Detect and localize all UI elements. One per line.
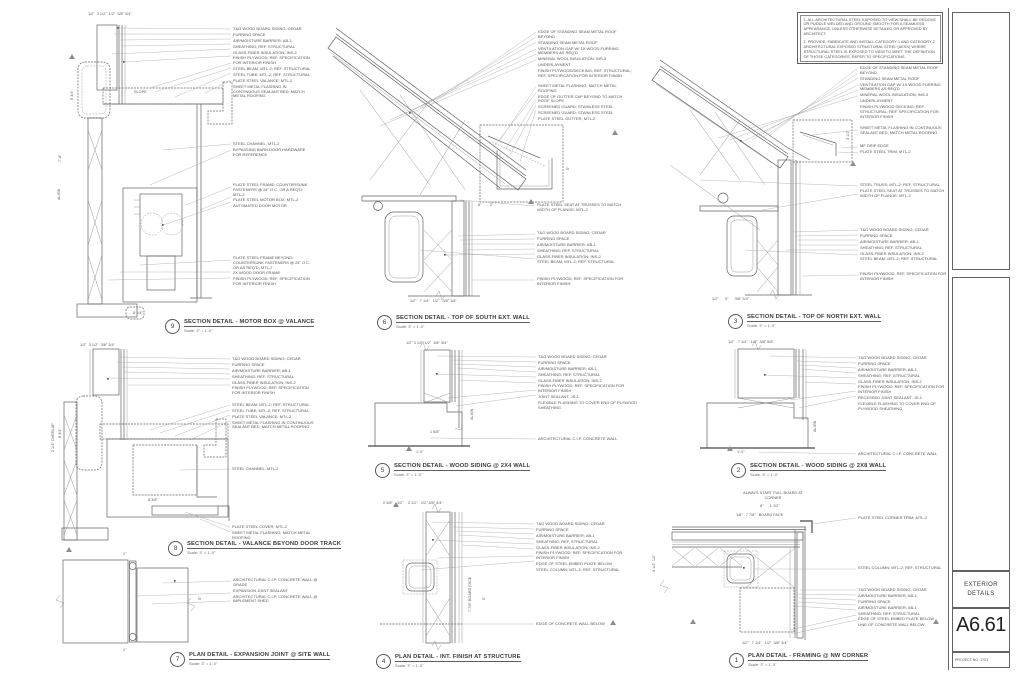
annotation-line: SHEATHING; REF. STRUCTURAL (233, 45, 313, 50)
dimension-text: 5" (482, 597, 486, 600)
annotation-line: FURRING SPACE (537, 237, 627, 242)
dimension-text: 1/2" 3 1/2" 1/2" 3/8" 3/4" (406, 341, 448, 345)
corner-board-note: ALWAYS START FULL BOARD AT CORNER (742, 491, 804, 501)
annotation-line: SHEET METAL FLASHING IN CONTINUOUS SEALA… (233, 85, 313, 99)
detail-scale: Scale: 3" = 1'-0" (395, 663, 521, 668)
detail-title: SECTION DETAIL - WOOD SIDING @ 2X4 WALL (394, 463, 530, 471)
annotation-line: BYPASSING BARN DOOR HARDWARE FOR REFEREN… (233, 148, 313, 158)
dimension-text: 1'-0" (737, 450, 745, 454)
dimension-text: 8 1/4" (133, 311, 143, 315)
detail-number-bubble: 6 (377, 315, 392, 330)
dimension-text: 8" 2" (478, 203, 493, 207)
annotation-line: ARCHITECTURAL C.I.P. CONCRETE WALL @ IMP… (233, 595, 318, 605)
revision-triangle-icon (610, 620, 616, 625)
annotation-line: VENTILATION GAP W/ 1X WOOD FURRING MEMBE… (860, 83, 952, 93)
annotation-line: FURRING SPACE (858, 362, 950, 367)
annotation-line: VENTILATION GAP W/ 1X WOOD FURRING MEMBE… (538, 47, 633, 57)
dimension-text: 5" (566, 167, 570, 170)
titleblock-rule (948, 8, 949, 670)
annotation-group: T&G WOOD BOARD SIDING; CEDARFURRING SPAC… (232, 357, 317, 397)
annotation-line: PLATE STEEL SEAT AT TRUSSES TO MATCH WID… (860, 189, 952, 199)
detail-number-bubble: 2 (731, 463, 746, 478)
annotation-line: SHEATHING; REF. STRUCTURAL (538, 373, 638, 378)
titleblock-upper-box (952, 12, 1010, 270)
detail-title: SECTION DETAIL - VALANCE BEYOND DOOR TRA… (187, 541, 341, 549)
revision-triangle-icon (690, 619, 696, 624)
annotation-line: PLATE STEEL FRAME; COUNTERSUNK FASTENERS… (233, 183, 313, 197)
dimension-text: ALIGN (57, 189, 61, 200)
annotation-group: T&G WOOD BOARD SIDING; CEDARFURRING SPAC… (536, 522, 624, 574)
annotation-group: ARCHITECTURAL C.I.P. CONCRETE WALL (538, 437, 638, 443)
annotation-line: ARCHITECTURAL C.I.P. CONCRETE WALL (858, 452, 950, 457)
annotation-line: FURRING SPACE (536, 528, 624, 533)
annotation-group: EDGE OF STANDING SEAM METAL ROOF BEYONDS… (860, 66, 952, 121)
annotation-line: AIR/MOISTURE BARRIER; AB-1 (538, 367, 638, 372)
annotation-line: AUTOMATED DOOR MOTOR (233, 204, 313, 209)
annotation-group: ARCHITECTURAL C.I.P. CONCRETE WALL @ GRA… (233, 578, 318, 605)
revision-triangle-icon (612, 130, 618, 135)
annotation-group: T&G WOOD BOARD SIDING; CEDARFURRING SPAC… (538, 355, 638, 412)
annotation-line: 1. ALL ARCHITECTURAL STEEL EXPOSED TO VI… (804, 18, 937, 38)
dimension-text: 1/2" 7 1/4" 1/2" 3/8" 3/4" (742, 641, 788, 645)
detail-title: SECTION DETAIL - MOTOR BOX @ VALANCE (184, 319, 314, 327)
annotation-line: PLATE STEEL FRAME BEYOND; COUNTERSUNK FA… (233, 256, 315, 270)
detail-title: SECTION DETAIL - TOP OF SOUTH EXT. WALL (396, 315, 530, 323)
detail-9-drawing (77, 25, 232, 319)
revision-triangle-icon (528, 199, 534, 204)
sheet-name: EXTERIOR DETAILS (952, 571, 1010, 608)
annotation-line: SHEATHING; REF. STRUCTURAL (860, 246, 952, 251)
detail-number-bubble: 3 (728, 314, 743, 329)
dimension-text: 7'-8" (58, 154, 62, 162)
annotation-group: PLATE STEEL CORNER TRIM; MTL-2 (858, 516, 948, 522)
annotation-line: SHEATHING; REF. STRUCTURAL (537, 249, 627, 254)
dimension-text: 1/8" 7 7/8" BOARD FACE (736, 513, 783, 517)
detail-number-bubble: 1 (729, 653, 744, 668)
annotation-line: SHEET METAL FLASHING; MATCH METAL ROOFIN… (538, 84, 628, 94)
annotation-line: FINISH PLYWOOD; REF. SPECIFICATION FOR I… (538, 384, 638, 394)
annotation-line: STANDING SEAM METAL ROOF (860, 77, 952, 82)
annotation-line: AIR/MOISTURE BARRIER; AB-1 (858, 594, 953, 599)
annotation-line: FURRING SPACE (858, 600, 953, 605)
annotation-line: FINISH PLYWOOD; REF. SPECIFICATION FOR I… (536, 551, 624, 561)
detail-2-drawing (700, 341, 815, 448)
dimension-text: 8" 1 1/2" (760, 504, 780, 508)
annotation-line: STEEL COLUMN; MTL-2; REF. STRUCTURAL (858, 566, 948, 571)
annotation-line: STEEL BEAM; MTL-2; REF. STRUCTURAL (537, 260, 627, 265)
annotation-line: 2. PROVIDE, FABRICATE AND INSTALL CATEGO… (804, 40, 937, 60)
detail-scale: Scale: 3" = 1'-0" (747, 323, 881, 328)
annotation-group: STEEL CHANNEL; MTL-2 (232, 467, 317, 473)
annotation-line: FLEXIBLE FLASHING TO COVER END OF PLYWOO… (858, 402, 950, 412)
detail-number-bubble: 9 (165, 319, 180, 334)
detail-scale: Scale: 3" = 1'-0" (750, 472, 886, 477)
annotation-group: PLATE STEEL COVER; MTL-2SHEET METAL FLAS… (232, 525, 322, 542)
detail-scale: Scale: 3" = 1'-0" (396, 324, 530, 329)
annotation-group: ARCHITECTURAL C.I.P. CONCRETE WALL (858, 452, 950, 458)
general-notes-box: 1. ALL ARCHITECTURAL STEEL EXPOSED TO VI… (797, 12, 943, 64)
annotation-line: EXPANSION JOINT SEALANT (233, 589, 318, 594)
detail-title: SECTION DETAIL - TOP OF NORTH EXT. WALL (747, 314, 881, 322)
annotation-line: SHEET METAL FLASHING IN CONTINUOUS SEALA… (860, 126, 952, 136)
annotation-line: FURRING SPACE (233, 33, 313, 38)
annotation-group: STEEL CHANNEL; MTL-2BYPASSING BARN DOOR … (233, 142, 313, 159)
annotation-line: PLATE STEEL VALANCE; MTL-2 (233, 79, 313, 84)
annotation-line: AIR/MOISTURE BARRIER; AB-1 (233, 39, 313, 44)
annotation-line: STEEL TUBE; MTL-2; REF. STRUCTURAL (232, 409, 320, 414)
detail-title: PLAN DETAIL - EXPANSION JOINT @ SITE WAL… (189, 652, 330, 660)
annotation-line: STEEL COLUMN; MTL-2; REF. STRUCTURAL (536, 568, 624, 573)
detail-scale: Scale: 3" = 1'-0" (748, 662, 868, 667)
annotation-line: AIR/MOISTURE BARRIER; AB-1 (537, 243, 627, 248)
dimension-text: 1 5/8" (430, 430, 440, 434)
annotation-line: PLATE STEEL CORNER TRIM; MTL-2 (858, 516, 948, 521)
annotation-line: EDGE OF STANDING SEAM METAL ROOF BEYOND (860, 66, 952, 76)
dimension-text: 7 7/8" BOARD FACE (468, 577, 472, 612)
annotation-line: EDGE OF STANDING SEAM METAL ROOF BEYOND (538, 30, 633, 40)
dimension-text: 5" (198, 597, 202, 600)
detail-1-drawing (660, 521, 812, 640)
dimension-text: 1" (123, 552, 126, 556)
annotation-line: FURRING SPACE (232, 363, 317, 368)
annotation-group: PLATE STEEL SEAT AT TRUSSES TO MATCH WID… (537, 203, 627, 214)
annotation-group: T&G WOOD BOARD SIDING; CEDARFURRING SPAC… (860, 228, 952, 263)
detail-8-drawing (62, 349, 229, 540)
titleblock-middle-box (952, 277, 1010, 571)
detail-scale: Scale: 3" = 1'-0" (394, 472, 530, 477)
annotation-line: FINISH PLYWOOD; REF. SPECIFICATION FOR I… (537, 277, 627, 287)
detail-title: PLAN DETAIL - FRAMING @ NW CORNER (748, 653, 868, 661)
general-notes-text: 1. ALL ARCHITECTURAL STEEL EXPOSED TO VI… (800, 15, 941, 62)
annotation-line: FINISH PLYWOOD; REF. SPECIFICATION FOR I… (233, 277, 315, 287)
detail-title: PLAN DETAIL - INT. FINISH AT STRUCTURE (395, 654, 521, 662)
annotation-line: ARCHITECTURAL C.I.P. CONCRETE WALL @ GRA… (233, 578, 318, 588)
dimension-text: 1'-0" (416, 450, 424, 454)
detail-number-bubble: 4 (376, 654, 391, 669)
dimension-text: ALIGN (813, 421, 817, 432)
revision-triangle-icon (850, 161, 856, 166)
annotation-line: FINISH PLYWOOD; REF. SPECIFICATION FOR I… (232, 386, 317, 396)
dimension-text: 5 3/4" (70, 90, 74, 100)
dimension-text: 1/2" 5" 3/8" 3/4" (712, 297, 749, 301)
detail-3-drawing (652, 60, 852, 299)
dimension-text: 8 3/4" (58, 428, 62, 438)
annotation-line: LINE OF CONCRETE WALL BELOW (858, 623, 953, 628)
annotation-line: PLATE STEEL SEAT AT TRUSSES TO MATCH WID… (537, 203, 627, 213)
annotation-line: FINISH PLYWOOD; REF. SPECIFICATION FOR I… (233, 56, 313, 66)
annotation-line: ARCHITECTURAL C.I.P. CONCRETE WALL (538, 437, 638, 442)
dimension-text: SLOPE (134, 90, 147, 94)
annotation-line: AIR/MOISTURE BARRIER; AB-1 (232, 369, 317, 374)
annotation-line: STEEL CHANNEL; MTL-2 (232, 467, 317, 472)
revision-triangle-icon (66, 547, 72, 552)
annotation-line: SHEATHING; REF. STRUCTURAL (536, 540, 624, 545)
detail-scale: Scale: 3" = 1'-0" (184, 328, 314, 333)
annotation-group: T&G WOOD BOARD SIDING; CEDARFURRING SPAC… (858, 356, 950, 413)
annotation-line: AIR/MOISTURE BARRIER; AB-1 (858, 606, 953, 611)
annotation-line: FLEXIBLE FLASHING TO COVER END OF PLYWOO… (538, 401, 638, 411)
revision-triangle-icon (393, 502, 399, 507)
annotation-line: SHEET METAL FLASHING; MATCH METAL ROOFIN… (232, 531, 322, 541)
dimension-text: 1/2" 7 1/4" 1/2" 3/8" 3/4" (410, 299, 457, 303)
annotation-group: SHEET METAL FLASHING; MATCH METAL ROOFIN… (538, 84, 628, 123)
dimension-text: 1/2" 7 1/4" 1/2" 3/8" 5/8" (728, 340, 774, 344)
detail-title: SECTION DETAIL - WOOD SIDING @ 2X8 WALL (750, 463, 886, 471)
detail-6-drawing (328, 28, 563, 300)
annotation-group: EDGE OF STANDING SEAM METAL ROOF BEYONDS… (538, 30, 633, 80)
annotation-group: SHEET METAL FLASHING IN CONTINUOUS SEALA… (860, 126, 952, 137)
dimension-text: 1" (123, 648, 126, 652)
detail-scale: Scale: 3" = 1'-0" (187, 550, 341, 555)
dimension-text: 2 1/4" OVERLAP (51, 423, 55, 452)
annotation-line: AIR/MOISTURE BARRIER; AB-1 (860, 240, 952, 245)
annotation-line: STANDING SEAM METAL ROOF (538, 41, 633, 46)
dimension-text: 3 1/2" 1/2" (652, 555, 656, 572)
detail-scale: Scale: 3" = 1'-0" (189, 661, 330, 666)
annotation-line: FINISH PLYWOOD DECKING; REF. STRUCTURAL;… (860, 105, 952, 119)
annotation-line: EDGE OF GUTTER CAP BEYOND TO MATCH ROOF … (538, 95, 628, 105)
annotation-line: SHEATHING; REF. STRUCTURAL (232, 375, 317, 380)
annotation-line: FINISH PLYWOOD; REF. SPECIFICATION FOR I… (858, 385, 950, 395)
detail-number-bubble: 8 (168, 541, 183, 556)
detail-5-drawing (368, 342, 470, 446)
dimension-text: 3 1/2" (846, 130, 850, 140)
dimension-text: ALIGN (470, 409, 474, 420)
annotation-line: FINISH PLYWOOD; REF. SPECIFICATION FOR I… (860, 272, 952, 282)
annotation-group: STEEL COLUMN; MTL-2; REF. STRUCTURAL (858, 566, 948, 572)
annotation-line: STEEL BEAM; MTL-2; REF. STRUCTURAL (860, 257, 952, 262)
annotation-group: FINISH PLYWOOD; REF. SPECIFICATION FOR I… (860, 272, 952, 283)
annotation-group: T&G WOOD BOARD SIDING; CEDARFURRING SPAC… (537, 231, 627, 266)
detail-7-drawing (56, 560, 195, 643)
revision-triangle-icon (727, 446, 733, 451)
project-number: PROJECT NO. 1703 (952, 652, 1010, 668)
annotation-line: FINISH PLYWOOD/DECKING; REF. STRUCTURAL;… (538, 69, 633, 79)
annotation-group: PLATE STEEL FRAME BEYOND; COUNTERSUNK FA… (233, 256, 315, 288)
annotation-group: MF DRIP EDGEPLATE STEEL TRIM; MTL-2 (860, 144, 952, 156)
drawing-sheet: 1. ALL ARCHITECTURAL STEEL EXPOSED TO VI… (0, 0, 1024, 683)
annotation-line: PLATE STEEL VALANCE; MTL-2 (232, 415, 320, 420)
revision-triangle-icon (406, 446, 412, 451)
annotation-line: FURRING SPACE (538, 361, 638, 366)
dimension-text: 2 3/8" 1/2" 2 1/2" 1/2" 3/8" 3/4" (383, 501, 443, 505)
revision-triangle-icon (69, 54, 75, 59)
dimension-text: 6 3/8" (148, 498, 158, 502)
annotation-line: PLATE STEEL TRIM; MTL-2 (860, 150, 952, 155)
detail-number-bubble: 5 (375, 463, 390, 478)
annotation-group: STEEL TRUSS; MTL-2; REF. STRUCTURALPLATE… (860, 183, 952, 200)
annotation-group: PLATE STEEL FRAME; COUNTERSUNK FASTENERS… (233, 183, 313, 210)
annotation-group: STEEL BEAM; MTL-2; REF. STRUCTURALSTEEL … (232, 403, 320, 431)
annotation-line: AIR/MOISTURE BARRIER; AB-1 (858, 368, 950, 373)
sheet-number: A6.61 (952, 608, 1010, 652)
annotation-line: SHEATHING; REF. STRUCTURAL (858, 374, 950, 379)
dimension-text: 1/2" 3 1/2" 3/8" 3/4" (80, 343, 115, 347)
dimension-text: 1/2" 3 1/2" 1/2" 3/8" 3/4" (88, 12, 132, 16)
annotation-line: SHEET METAL FLASHING IN CONTINUOUS SEALA… (232, 421, 320, 431)
annotation-line: FURRING SPACE (860, 234, 952, 239)
annotation-line: PLATE STEEL GUTTER; MTL-2 (538, 117, 628, 122)
annotation-group: T&G WOOD BOARD SIDING; CEDARFURRING SPAC… (233, 27, 313, 100)
detail-number-bubble: 7 (170, 652, 185, 667)
revision-triangle-icon (933, 619, 939, 624)
detail-4-drawing (380, 504, 462, 650)
annotation-line: AIR/MOISTURE BARRIER; AB-1 (536, 534, 624, 539)
annotation-group: FINISH PLYWOOD; REF. SPECIFICATION FOR I… (537, 277, 627, 288)
